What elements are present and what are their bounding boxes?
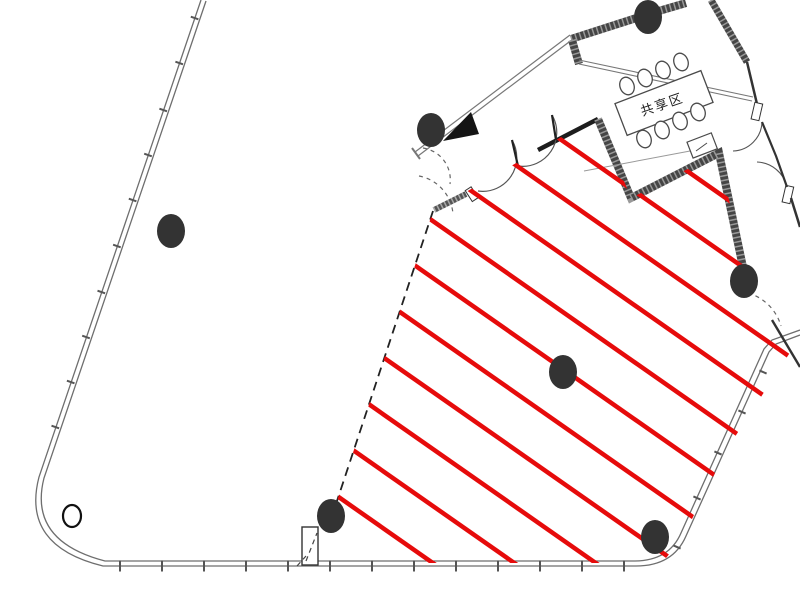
hatched-wall — [711, 0, 747, 62]
wall-segment — [747, 62, 757, 104]
hatch-line — [300, 242, 800, 600]
right-bottom-door — [748, 293, 800, 367]
hatch-line — [300, 356, 800, 600]
chair — [653, 59, 673, 81]
hatch-line — [300, 470, 800, 600]
small-circle-marker — [63, 505, 81, 527]
hatch-line — [300, 413, 800, 600]
door-arc-icon — [518, 115, 557, 166]
mullion-tick — [67, 381, 75, 384]
structural-column — [634, 0, 662, 34]
shared-zone-hatching — [300, 0, 800, 600]
door-leaves — [512, 115, 556, 166]
chair — [617, 75, 637, 97]
mullion-tick — [191, 17, 199, 20]
mullion-tick — [98, 291, 106, 294]
door-arc-icon — [748, 293, 781, 326]
structural-column — [549, 355, 577, 389]
mullion-tick — [113, 245, 121, 248]
mullion-tick — [159, 109, 167, 112]
zone-dashed-boundary — [334, 211, 433, 510]
structural-column — [641, 520, 669, 554]
structural-column — [317, 499, 345, 533]
hatch-line — [300, 71, 800, 446]
mullion-tick — [52, 426, 60, 429]
zone-entry-double-door — [434, 115, 557, 210]
structural-column — [157, 214, 185, 248]
bottom-door — [297, 527, 318, 566]
wall-segment — [791, 198, 800, 227]
structural-column — [417, 113, 445, 147]
top-wall-band — [571, 3, 686, 64]
hatched-wall-stub — [572, 40, 579, 64]
mullion-tick — [82, 336, 90, 339]
floor-plan-canvas: 共享区 — [0, 0, 800, 600]
door-arc-icon — [478, 140, 517, 191]
floor-plan-image: 共享区 — [0, 0, 800, 600]
mullion-tick — [144, 154, 152, 157]
hatch-line — [300, 0, 800, 275]
white-circle-group — [63, 505, 81, 527]
door-jamb — [751, 102, 763, 120]
chair — [671, 51, 691, 73]
mullion-tick — [175, 62, 183, 65]
hatch-line — [300, 14, 800, 389]
door-arc-icon — [733, 122, 762, 151]
structural-column — [730, 264, 758, 298]
door-leaves — [762, 122, 787, 187]
mullion-tick — [129, 199, 137, 202]
door-leaf-rect — [302, 527, 318, 565]
chair — [635, 67, 655, 89]
